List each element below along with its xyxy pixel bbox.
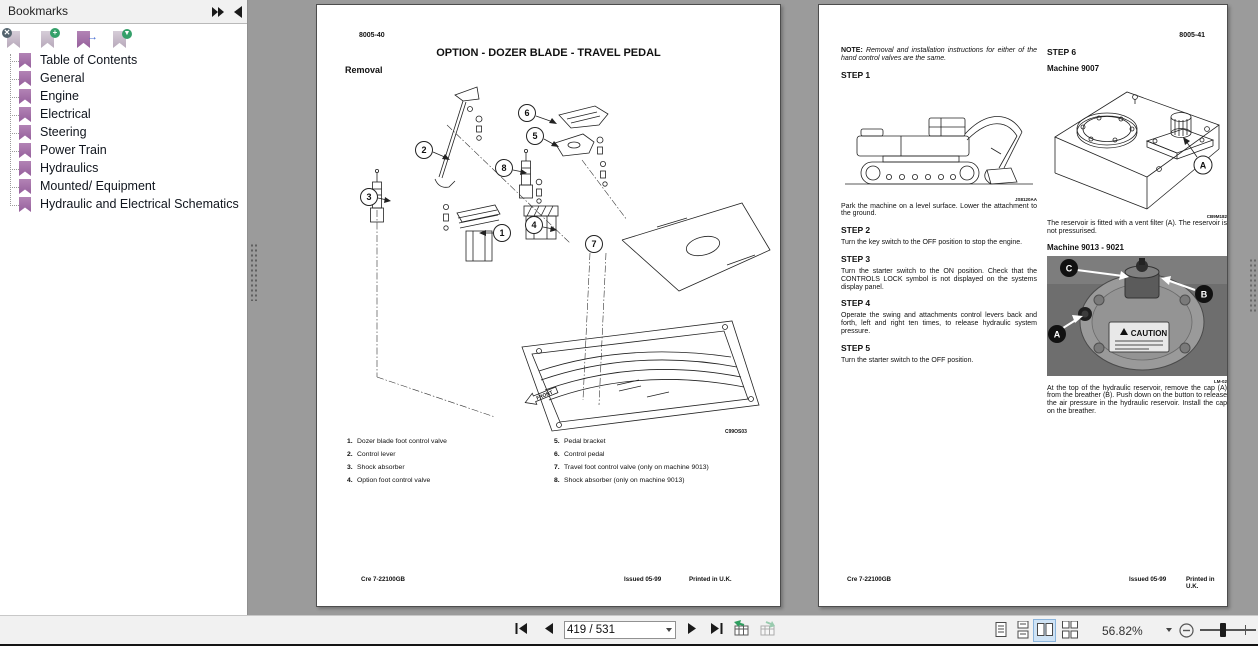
machine-heading: Machine 9013 - 9021 (1047, 243, 1227, 252)
svg-text:B: B (1201, 289, 1208, 299)
next-page-button[interactable] (682, 620, 702, 640)
document-page-left: 8005-40 OPTION - DOZER BLADE - TRAVEL PE… (316, 4, 781, 607)
bookmark-item-hydraulics[interactable]: Hydraulics (0, 160, 248, 178)
bookmark-item-engine[interactable]: Engine (0, 88, 248, 106)
reservoir-figure: A (1047, 77, 1227, 211)
zoom-slider-tick (1245, 625, 1246, 635)
next-view-button[interactable] (757, 620, 777, 640)
last-page-icon (708, 622, 724, 635)
bookmark-item-hydraulic-electrical-schematics[interactable]: Hydraulic and Electrical Schematics (0, 196, 248, 214)
step-text: Turn the starter switch to the OFF posit… (841, 357, 1037, 365)
bookmark-icon (19, 71, 31, 86)
step-heading: STEP 1 (841, 70, 1037, 80)
previous-view-icon (732, 620, 751, 637)
bookmark-item-general[interactable]: General (0, 70, 248, 88)
step-text: Turn the starter switch to the ON positi… (841, 268, 1037, 291)
part-item: 8.Shock absorber (only on machine 9013) (554, 477, 769, 490)
svg-text:1: 1 (499, 228, 504, 238)
figure-code: C99OS03 (725, 429, 747, 435)
bookmarks-toolbar: ✕ + → ▼ (0, 28, 248, 50)
document-page-right: 8005-41 NOTE: Removal and installation i… (818, 4, 1228, 607)
bookmarks-tree: Table of Contents General Engine Electri… (0, 52, 248, 214)
callout-3: 3 (361, 189, 392, 206)
single-page-icon (992, 621, 1010, 639)
step-text: Turn the key switch to the OFF position … (841, 239, 1037, 247)
callout-2: 2 (416, 142, 451, 161)
caution-label: CAUTION (1131, 329, 1168, 338)
figure-code: LM-02 (1047, 379, 1227, 384)
bookmark-icon (19, 53, 31, 68)
step-heading: STEP 3 (841, 254, 1037, 264)
part-item: 7.Travel foot control valve (only on mac… (554, 464, 769, 477)
next-page-icon (685, 622, 699, 635)
chevron-down-icon[interactable] (666, 628, 672, 632)
zoom-slider-track[interactable] (1200, 629, 1256, 631)
zoom-slider-handle[interactable] (1220, 623, 1226, 637)
bookmarks-panel-header: Bookmarks (0, 0, 247, 24)
facing-continuous-layout-button[interactable] (1059, 620, 1080, 641)
footer-issued: Issued 05-99 (1129, 576, 1166, 583)
go-to-bookmark-icon[interactable]: → (74, 30, 94, 50)
right-arrow-badge-icon: → (87, 31, 98, 43)
step-text: Operate the swing and attachments contro… (841, 312, 1037, 335)
svg-text:A: A (1054, 329, 1061, 339)
right-page-right-column: STEP 6 Machine 9007 (1047, 47, 1227, 416)
footer-issued: Issued 05-99 (624, 576, 661, 583)
pdf-reader-window: Bookmarks ✕ + → ▼ (0, 0, 1258, 646)
next-view-icon (758, 620, 777, 637)
bookmark-item-power-train[interactable]: Power Train (0, 142, 248, 160)
page-number-code: 8005-41 (1179, 32, 1205, 39)
callout-1: 1 (479, 225, 511, 242)
svg-text:4: 4 (531, 220, 536, 230)
section-heading: Removal (345, 65, 383, 75)
bookmark-item-electrical[interactable]: Electrical (0, 106, 248, 124)
page-title: OPTION - DOZER BLADE - TRAVEL PEDAL (317, 47, 780, 59)
facing-continuous-icon (1061, 621, 1079, 639)
parts-list-column-1: 1.Dozer blade foot control valve 2.Contr… (347, 438, 547, 490)
plus-badge-icon: + (50, 28, 60, 38)
callout-5: 5 (527, 128, 560, 148)
part-item: 3.Shock absorber (347, 464, 547, 477)
svg-text:7: 7 (591, 239, 596, 249)
part-item: 1.Dozer blade foot control valve (347, 438, 547, 451)
svg-text:3: 3 (366, 192, 371, 202)
step-heading: STEP 6 (1047, 47, 1227, 57)
figure-code: CB9M182 (1047, 214, 1227, 219)
last-page-button[interactable] (706, 620, 726, 640)
first-page-icon (514, 622, 530, 635)
bookmark-icon (19, 143, 31, 158)
svg-text:6: 6 (524, 108, 529, 118)
machine-heading: Machine 9007 (1047, 64, 1227, 73)
step-text: Park the machine on a level surface. Low… (841, 203, 1037, 219)
svg-text:A: A (1200, 161, 1207, 171)
breather-photo: CAUTION C B A (1047, 256, 1227, 376)
part-item: 5.Pedal bracket (554, 438, 769, 451)
part-item: 6.Control pedal (554, 451, 769, 464)
panel-collapse-icon[interactable] (231, 5, 247, 19)
first-page-button[interactable] (512, 620, 532, 640)
panel-expand-icon[interactable] (210, 5, 226, 19)
footer-printed: Printed in U.K. (1186, 576, 1227, 590)
delete-bookmark-icon[interactable]: ✕ (4, 30, 24, 50)
bookmark-options-icon[interactable]: ▼ (110, 30, 130, 50)
callout-4: 4 (526, 217, 558, 234)
footer-ref: Cre 7-22100GB (847, 576, 891, 583)
callout-7: 7 (586, 236, 603, 253)
x-badge-icon: ✕ (2, 28, 12, 38)
bookmark-icon (19, 89, 31, 104)
step-heading: STEP 4 (841, 298, 1037, 308)
footer-ref: Cre 7-22100GB (361, 576, 405, 583)
bottom-toolbar: 56.82% (0, 615, 1258, 644)
step-heading: STEP 2 (841, 225, 1037, 235)
right-splitter-handle[interactable] (1249, 258, 1257, 312)
previous-view-button[interactable] (731, 620, 751, 640)
footer-printed: Printed in U.K. (689, 576, 732, 583)
zoom-out-icon[interactable] (1179, 623, 1194, 638)
parts-list-column-2: 5.Pedal bracket 6.Control pedal 7.Travel… (554, 438, 769, 490)
previous-page-icon (542, 622, 556, 635)
page-number-input[interactable] (567, 622, 659, 638)
bookmark-item-mounted-equipment[interactable]: Mounted/ Equipment (0, 178, 248, 196)
figure-code: JS8120AA (841, 197, 1037, 202)
facing-pages-icon (1036, 621, 1054, 639)
chevron-down-badge-icon: ▼ (122, 29, 132, 39)
svg-text:2: 2 (421, 145, 426, 155)
bookmark-icon (19, 179, 31, 194)
facing-pages-layout-button-selected[interactable] (1034, 620, 1055, 641)
page-number-combobox[interactable] (564, 621, 676, 639)
step-heading: STEP 5 (841, 343, 1037, 353)
continuous-layout-button[interactable] (1012, 620, 1033, 641)
note-paragraph: NOTE: Removal and installation instructi… (841, 47, 1037, 63)
svg-text:C: C (1066, 263, 1073, 273)
previous-page-button[interactable] (539, 620, 559, 640)
photo-text: At the top of the hydraulic reservoir, r… (1047, 385, 1227, 416)
page-number-code: 8005-40 (359, 32, 385, 39)
panel-splitter-handle[interactable] (250, 243, 259, 301)
bookmark-icon (19, 197, 31, 212)
part-item: 4.Option foot control valve (347, 477, 547, 490)
callout-6: 6 (519, 105, 558, 125)
single-page-layout-button[interactable] (990, 620, 1011, 641)
bookmark-icon (19, 161, 31, 176)
bookmark-item-steering[interactable]: Steering (0, 124, 248, 142)
bookmark-item-table-of-contents[interactable]: Table of Contents (0, 52, 248, 70)
bookmarks-panel-title: Bookmarks (8, 4, 68, 18)
add-bookmark-icon[interactable]: + (38, 30, 58, 50)
bookmark-icon (19, 107, 31, 122)
continuous-pages-icon (1014, 621, 1032, 639)
svg-text:5: 5 (532, 131, 537, 141)
zoom-dropdown-icon[interactable] (1166, 628, 1172, 632)
excavator-figure (841, 84, 1037, 194)
svg-text:8: 8 (501, 163, 506, 173)
zoom-percentage[interactable]: 56.82% (1102, 624, 1143, 638)
bookmarks-panel: Bookmarks ✕ + → ▼ (0, 0, 248, 615)
right-page-left-column: NOTE: Removal and installation instructi… (841, 47, 1037, 365)
reservoir-text: The reservoir is fitted with a vent filt… (1047, 220, 1227, 236)
bookmark-icon (19, 125, 31, 140)
part-item: 2.Control lever (347, 451, 547, 464)
exploded-diagram: FRONT 2 6 5 8 (327, 85, 772, 435)
